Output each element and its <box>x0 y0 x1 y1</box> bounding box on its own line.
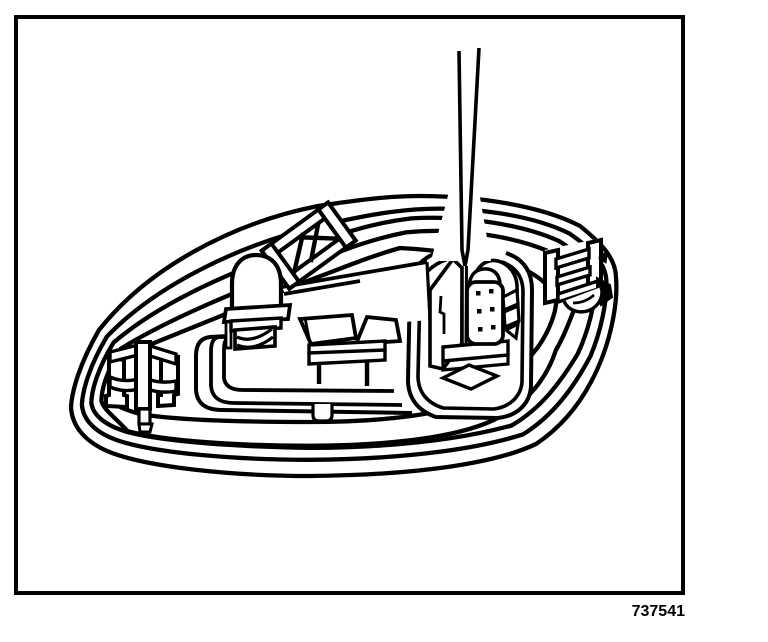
svg-text:737541: 737541 <box>632 603 685 620</box>
